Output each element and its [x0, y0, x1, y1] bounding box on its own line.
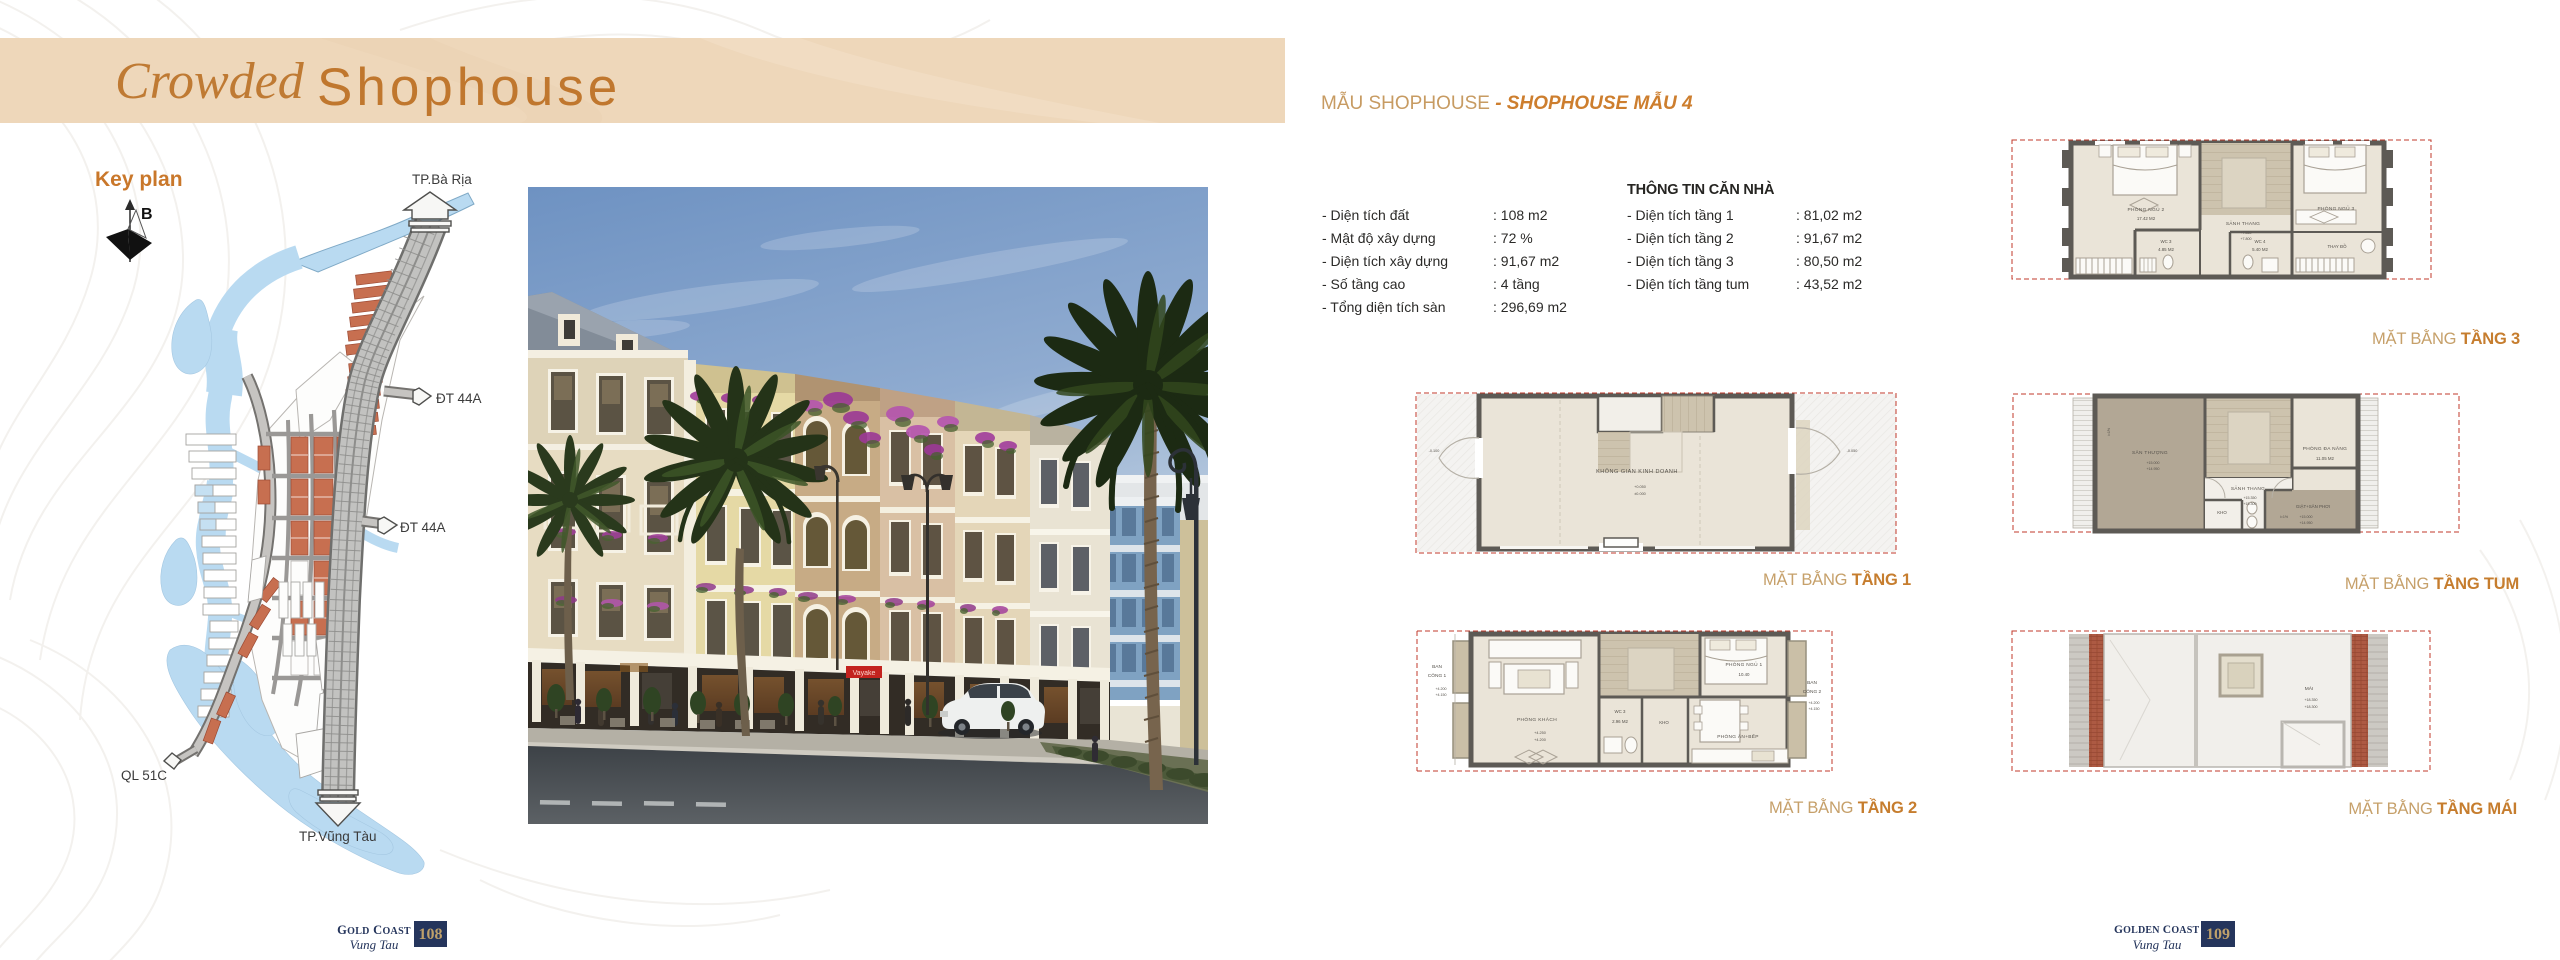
svg-text:4.85 M2: 4.85 M2: [2158, 247, 2174, 252]
svg-text:SẢNH THANG: SẢNH THANG: [2226, 220, 2260, 227]
svg-text:+0.050: +0.050: [1634, 485, 1646, 489]
svg-text:-0.100: -0.100: [1429, 449, 1440, 453]
svg-text:ĐT 44A: ĐT 44A: [436, 391, 482, 406]
svg-text:CÔNG 1: CÔNG 1: [1428, 672, 1447, 679]
svg-text:+4.250: +4.250: [1534, 731, 1546, 735]
svg-text:TP.Bà Rịa: TP.Bà Rịa: [412, 172, 472, 187]
svg-text:10.40: 10.40: [1739, 672, 1751, 677]
svg-text:Key plan: Key plan: [95, 168, 183, 191]
svg-text:+15.300: +15.300: [2243, 502, 2256, 506]
svg-text:+7.800: +7.800: [2240, 237, 2251, 241]
svg-text:GIẶT+SÂN PHƠI: GIẶT+SÂN PHƠI: [2296, 504, 2330, 509]
svg-text:2.96 M2: 2.96 M2: [1612, 719, 1628, 724]
svg-text:Vayake: Vayake: [853, 670, 876, 677]
svg-text:+4.150: +4.150: [1808, 707, 1819, 711]
svg-text:KHO: KHO: [1659, 720, 1669, 725]
svg-text:BAN: BAN: [1807, 680, 1817, 686]
svg-text:CÔNG 2: CÔNG 2: [1803, 688, 1822, 695]
svg-text:+15.000: +15.000: [2299, 515, 2312, 519]
svg-text:WC 4: WC 4: [2255, 239, 2267, 244]
svg-text:ĐT 44A: ĐT 44A: [400, 520, 446, 535]
svg-text:+14.950: +14.950: [2146, 467, 2159, 471]
svg-text:11.05 M2: 11.05 M2: [2316, 456, 2335, 461]
svg-text:-0.050: -0.050: [1847, 449, 1858, 453]
svg-text:QL 51C: QL 51C: [121, 768, 167, 783]
svg-text:PHÒNG NGỦ 2: PHÒNG NGỦ 2: [2128, 206, 2165, 213]
svg-text:+4.200: +4.200: [1534, 738, 1546, 742]
svg-text:+18.350: +18.350: [2304, 698, 2317, 702]
svg-text:KHO: KHO: [2217, 510, 2227, 515]
svg-text:BAN: BAN: [1432, 664, 1442, 670]
svg-text:+15.350: +15.350: [2243, 496, 2256, 500]
svg-text:+18.300: +18.300: [2304, 705, 2317, 709]
svg-text:MÁI: MÁI: [2305, 685, 2314, 692]
svg-text:B: B: [141, 206, 153, 223]
svg-text:i=1%: i=1%: [2107, 427, 2111, 436]
svg-text:+4.200: +4.200: [1435, 687, 1446, 691]
svg-text:WC 3: WC 3: [2161, 239, 2173, 244]
svg-text:SẢNH THANG: SẢNH THANG: [2231, 485, 2265, 492]
svg-text:KHÔNG GIAN KINH DOANH: KHÔNG GIAN KINH DOANH: [1596, 468, 1678, 475]
svg-text:i=1%: i=1%: [2280, 515, 2289, 519]
svg-text:+15.000: +15.000: [2146, 461, 2159, 465]
svg-text:TP.Vũng Tàu: TP.Vũng Tàu: [299, 829, 377, 844]
svg-text:WC 3: WC 3: [1615, 709, 1627, 714]
svg-text:+14.950: +14.950: [2299, 521, 2312, 525]
svg-text:+4.200: +4.200: [1808, 701, 1819, 705]
svg-text:PHÒNG NGỦ 1: PHÒNG NGỦ 1: [1726, 661, 1763, 668]
svg-text:PHÒNG ĂN+BẾP: PHÒNG ĂN+BẾP: [1717, 733, 1759, 740]
svg-text:SÂN THƯỢNG: SÂN THƯỢNG: [2132, 449, 2168, 456]
svg-text:+4.150: +4.150: [1435, 693, 1446, 697]
svg-text:PHÒNG KHÁCH: PHÒNG KHÁCH: [1517, 716, 1557, 723]
svg-text:PHÒNG ĐA NĂNG: PHÒNG ĐA NĂNG: [2303, 445, 2347, 452]
svg-text:5.40 M2: 5.40 M2: [2252, 247, 2268, 252]
svg-text:17.42 M2: 17.42 M2: [2137, 216, 2156, 221]
svg-text:THAY ĐỒ: THAY ĐỒ: [2327, 244, 2347, 249]
svg-text:±0.000: ±0.000: [1634, 492, 1646, 496]
svg-text:+7.850: +7.850: [2240, 231, 2251, 235]
svg-text:PHÒNG NGỦ 3: PHÒNG NGỦ 3: [2318, 205, 2355, 212]
